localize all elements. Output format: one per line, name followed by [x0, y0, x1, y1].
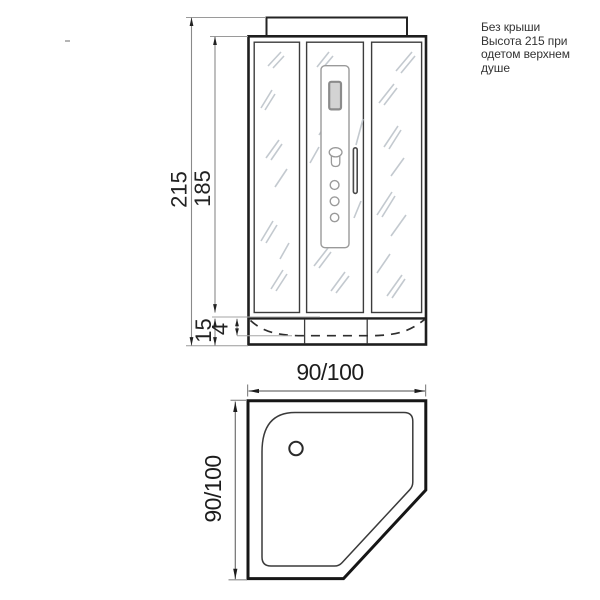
svg-text:185: 185 [190, 170, 215, 207]
svg-text:4: 4 [208, 323, 233, 335]
svg-text:90/100: 90/100 [200, 455, 226, 522]
svg-text:90/100: 90/100 [296, 359, 363, 385]
svg-text:215: 215 [167, 171, 192, 208]
